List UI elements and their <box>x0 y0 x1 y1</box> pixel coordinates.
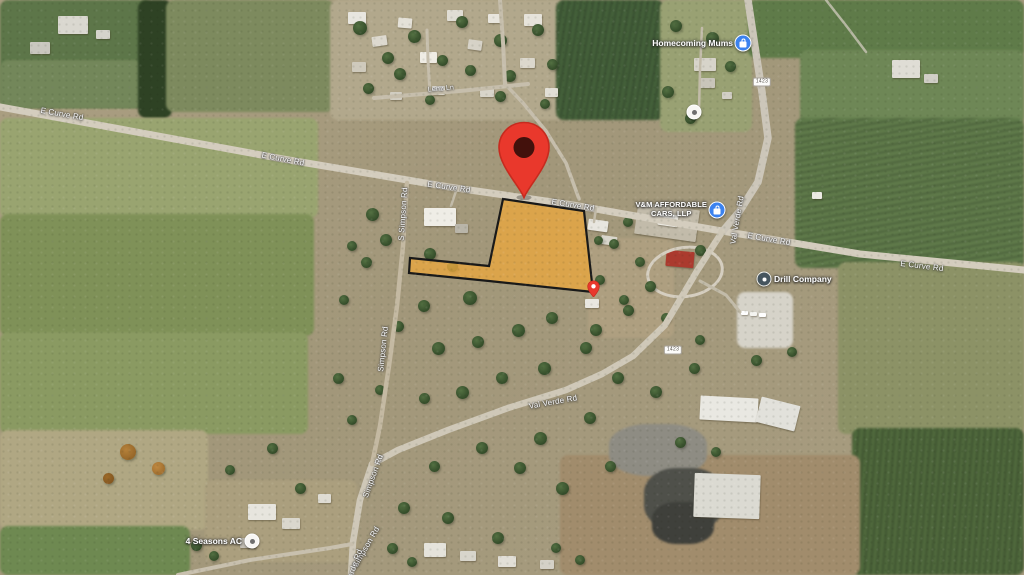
tree <box>429 461 440 472</box>
tree <box>447 261 458 272</box>
tree <box>209 551 219 561</box>
satellite-map[interactable]: E Curve RdE Curve RdE Curve RdE Curve Rd… <box>0 0 1024 575</box>
building <box>540 560 554 569</box>
tree <box>546 312 558 324</box>
road-label: Val Verde Rd <box>528 393 578 410</box>
tree <box>494 34 507 47</box>
tree <box>609 239 619 249</box>
terrain-patch <box>0 60 142 108</box>
tree <box>695 335 705 345</box>
building <box>587 219 608 233</box>
tree <box>612 372 624 384</box>
tree <box>152 462 165 475</box>
tree <box>504 70 516 82</box>
shopping-bag-icon <box>714 208 721 214</box>
road-label: Simpson Rd <box>376 326 390 372</box>
building <box>699 395 758 422</box>
tree <box>547 59 558 70</box>
vm-affordable-cars-label[interactable]: V&M AFFORDABLECARS, LLP <box>635 201 707 219</box>
terrain-patch <box>0 526 190 575</box>
tree <box>645 281 656 292</box>
tree <box>496 372 508 384</box>
homecoming-mums-icon[interactable] <box>735 35 752 52</box>
building <box>398 17 413 28</box>
poi-pin-icon <box>587 280 600 297</box>
tree <box>103 473 114 484</box>
tree <box>689 363 700 374</box>
terrain-patch <box>852 428 1024 575</box>
tree <box>267 443 278 454</box>
tree <box>556 482 569 495</box>
building <box>750 312 757 316</box>
building <box>892 60 920 78</box>
building <box>585 299 599 308</box>
tree <box>512 324 525 337</box>
terrain-patch <box>838 262 1024 434</box>
tree <box>540 99 550 109</box>
tree <box>514 462 526 474</box>
road-label: Simpson Rd <box>361 453 385 499</box>
tree <box>605 461 616 472</box>
road-label: E Curve Rd <box>551 197 595 213</box>
tree <box>584 412 596 424</box>
building <box>467 39 482 51</box>
unlabeled-place-icon[interactable] <box>687 105 702 120</box>
terrain-patch <box>205 480 357 562</box>
tree <box>619 295 629 305</box>
property-pin[interactable] <box>497 121 551 201</box>
terrain-patch <box>166 0 334 112</box>
building <box>700 78 715 88</box>
shopping-bag-icon <box>740 41 747 47</box>
building <box>759 313 766 317</box>
building <box>58 16 88 34</box>
tree <box>594 236 603 245</box>
tree <box>425 95 435 105</box>
building <box>812 192 822 199</box>
tree <box>725 61 736 72</box>
tree <box>419 393 430 404</box>
tree <box>590 324 602 336</box>
place-dot-icon <box>250 539 255 544</box>
tree <box>366 208 379 221</box>
building <box>352 62 366 72</box>
tree <box>476 442 488 454</box>
tree <box>675 437 686 448</box>
tree <box>580 342 592 354</box>
terrain-patch <box>0 332 308 434</box>
building <box>460 551 476 561</box>
tree <box>623 305 634 316</box>
building <box>488 14 501 23</box>
tree <box>670 20 682 32</box>
tree <box>393 321 404 332</box>
terrain-patch <box>0 118 318 218</box>
building <box>480 88 494 97</box>
road-label: E Curve Rd <box>427 180 471 195</box>
tree <box>661 313 671 323</box>
tree <box>432 342 445 355</box>
tree <box>418 300 430 312</box>
building <box>30 42 50 54</box>
tree <box>339 295 349 305</box>
terrain-patch <box>0 214 314 336</box>
tree <box>437 55 448 66</box>
tree <box>538 362 551 375</box>
place-dot-icon <box>762 277 766 281</box>
drill-company-label[interactable]: Drill Company <box>774 274 832 284</box>
vm-affordable-cars-icon[interactable] <box>709 202 726 219</box>
tree <box>225 465 235 475</box>
building <box>498 556 516 567</box>
tree <box>347 415 357 425</box>
route-shield: 1423 <box>753 78 771 87</box>
building <box>318 494 331 503</box>
building <box>420 52 437 63</box>
building <box>520 58 535 68</box>
building <box>924 74 938 83</box>
tree <box>662 86 674 98</box>
tree <box>551 543 561 553</box>
tree <box>408 30 421 43</box>
property-pin-icon <box>497 121 551 201</box>
tree <box>347 241 357 251</box>
building <box>455 224 468 233</box>
terrain-patch <box>556 0 664 120</box>
four-seasons-ac-label[interactable]: 4 Seasons AC <box>186 536 242 546</box>
tree <box>394 68 406 80</box>
tree <box>398 502 410 514</box>
tree <box>623 217 633 227</box>
building <box>722 92 732 99</box>
road-label: Val Verde Rd <box>728 195 745 245</box>
drill-company-icon[interactable] <box>757 272 772 287</box>
four-seasons-ac-icon[interactable] <box>245 534 260 549</box>
tree <box>407 557 417 567</box>
tree <box>361 257 372 268</box>
building <box>741 311 748 315</box>
tree <box>492 532 504 544</box>
tree <box>650 386 662 398</box>
tree <box>465 65 476 76</box>
tree <box>495 91 506 102</box>
tree <box>380 234 392 246</box>
building <box>96 30 110 39</box>
building <box>545 88 558 97</box>
building <box>755 397 800 432</box>
place-dot-icon <box>692 110 697 115</box>
building <box>371 35 387 47</box>
tree <box>456 386 469 399</box>
tree <box>456 16 468 28</box>
tree <box>382 52 394 64</box>
tree <box>532 24 544 36</box>
tree <box>711 447 721 457</box>
tree <box>387 543 398 554</box>
terrain-patch <box>737 292 793 348</box>
homecoming-mums-label[interactable]: Homecoming Mums <box>652 38 733 48</box>
building <box>248 504 276 520</box>
building <box>282 518 300 529</box>
tree <box>787 347 797 357</box>
building <box>424 208 456 226</box>
tree <box>695 245 706 256</box>
terrain-patch <box>795 118 1024 268</box>
tree <box>472 336 484 348</box>
poi-pin[interactable] <box>587 280 600 297</box>
tree <box>120 444 136 460</box>
route-shield: 1423 <box>664 346 682 355</box>
building <box>694 58 716 71</box>
tree <box>534 432 547 445</box>
tree <box>333 373 344 384</box>
tree <box>353 21 367 35</box>
tree <box>375 385 385 395</box>
tree <box>363 83 374 94</box>
tree <box>635 257 645 267</box>
road-label: E Curve Rd <box>747 231 791 247</box>
driveway-house <box>451 191 456 206</box>
road-label: S Simpson Rd <box>397 187 410 241</box>
building <box>693 473 760 519</box>
tree <box>463 291 477 305</box>
tree <box>442 512 454 524</box>
tree <box>751 355 762 366</box>
building <box>390 92 402 100</box>
tree <box>575 555 585 565</box>
tree <box>424 248 436 260</box>
building <box>424 543 446 557</box>
tree <box>295 483 306 494</box>
